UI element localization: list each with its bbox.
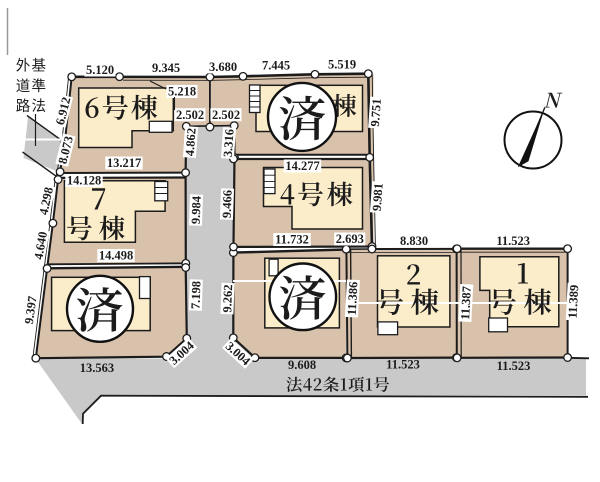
svg-text:4.640: 4.640 [31,230,50,260]
svg-text:路: 路 [16,98,31,115]
svg-text:5.120: 5.120 [86,63,114,77]
svg-text:9.345: 9.345 [152,61,180,75]
svg-text:2.502: 2.502 [212,108,240,122]
svg-text:2.693: 2.693 [336,232,364,246]
svg-text:14.277: 14.277 [285,159,319,173]
svg-text:11.387: 11.387 [458,286,474,320]
svg-text:済: 済 [278,261,326,330]
svg-text:11.523: 11.523 [496,234,530,248]
svg-text:5.519: 5.519 [328,58,356,72]
svg-text:9.262: 9.262 [220,284,235,313]
svg-text:9.466: 9.466 [220,190,235,219]
svg-text:号棟: 号棟 [66,207,131,246]
svg-text:5.218: 5.218 [168,85,196,99]
svg-text:11.732: 11.732 [275,233,309,247]
svg-text:11.386: 11.386 [345,281,361,315]
svg-text:6号棟: 6号棟 [84,87,160,126]
svg-text:号棟: 号棟 [375,281,445,322]
svg-text:9.397: 9.397 [22,295,40,325]
svg-text:7.198: 7.198 [189,281,204,310]
svg-text:外: 外 [16,58,31,75]
svg-text:11.389: 11.389 [566,284,582,318]
svg-text:13.563: 13.563 [80,361,114,375]
svg-text:基: 基 [32,58,47,75]
svg-text:9.984: 9.984 [189,195,204,224]
svg-text:14.498: 14.498 [99,249,133,263]
svg-text:9.981: 9.981 [370,183,386,212]
svg-text:N: N [543,85,563,114]
svg-text:7.445: 7.445 [262,59,290,73]
svg-text:4.862: 4.862 [183,127,199,156]
svg-text:9.608: 9.608 [288,358,316,372]
svg-text:2.502: 2.502 [176,108,204,122]
svg-text:道: 道 [16,78,31,95]
svg-text:11.523: 11.523 [386,358,420,372]
svg-text:済: 済 [278,81,326,150]
svg-text:4.298: 4.298 [36,186,56,216]
svg-text:11.523: 11.523 [497,359,531,373]
svg-text:法42条1項1号: 法42条1項1号 [286,372,391,396]
svg-text:3.680: 3.680 [209,60,237,74]
svg-text:3.316: 3.316 [221,128,237,157]
svg-text:法: 法 [32,98,47,115]
svg-text:13.217: 13.217 [107,156,141,170]
svg-text:済: 済 [75,273,123,342]
svg-text:8.830: 8.830 [400,234,428,248]
svg-text:9.751: 9.751 [368,98,384,127]
svg-text:号棟: 号棟 [488,281,558,322]
svg-text:14.128: 14.128 [67,174,101,188]
svg-text:準: 準 [32,78,47,95]
svg-text:4号棟: 4号棟 [280,173,356,212]
